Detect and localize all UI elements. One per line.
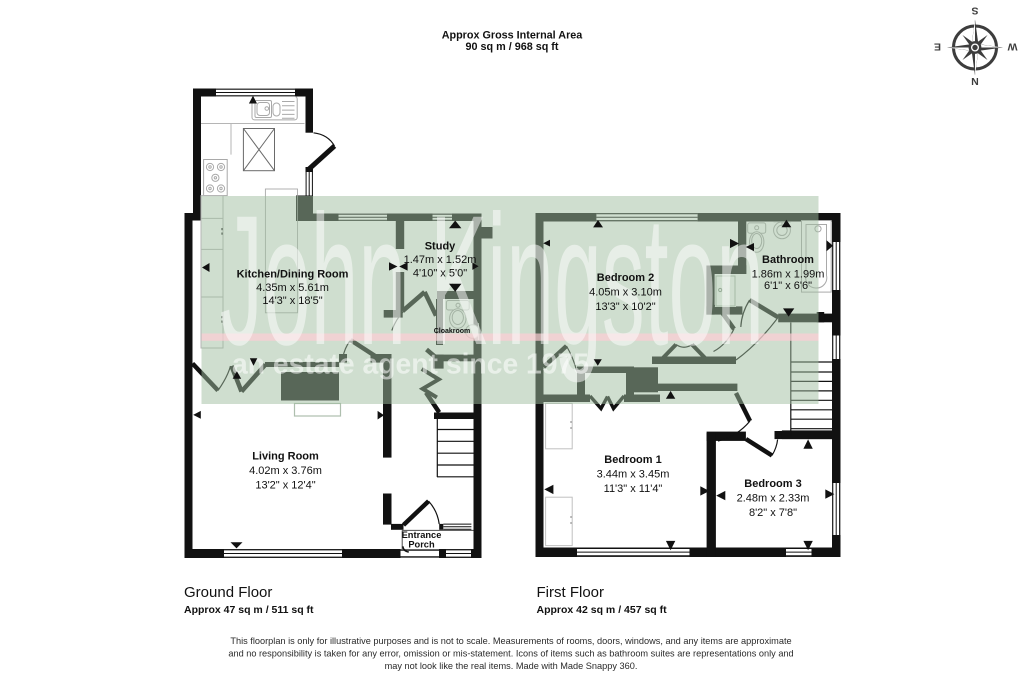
svg-text:First Floor: First Floor: [537, 584, 605, 601]
svg-text:may not look like the real ite: may not look like the real items. Made w…: [385, 661, 638, 671]
svg-text:This floorplan is only for ill: This floorplan is only for illustrative …: [230, 636, 791, 646]
svg-text:1.86m x 1.99m: 1.86m x 1.99m: [752, 269, 825, 281]
svg-text:an estate agent since 1975: an estate agent since 1975: [232, 349, 589, 381]
svg-text:Cloakroom: Cloakroom: [434, 328, 471, 335]
svg-text:3.44m x 3.45m: 3.44m x 3.45m: [597, 469, 670, 481]
svg-text:Ground Floor: Ground Floor: [184, 584, 272, 601]
svg-text:Bedroom 1: Bedroom 1: [604, 454, 661, 466]
svg-text:Porch: Porch: [408, 540, 435, 550]
svg-text:4.35m x 5.61m: 4.35m x 5.61m: [256, 282, 329, 294]
svg-text:Kitchen/Dining Room: Kitchen/Dining Room: [237, 269, 349, 281]
svg-text:Study: Study: [425, 241, 456, 253]
svg-text:Living Room: Living Room: [252, 451, 319, 463]
svg-text:90 sq m / 968 sq ft: 90 sq m / 968 sq ft: [465, 41, 558, 53]
svg-text:13'3" x 10'2": 13'3" x 10'2": [595, 301, 655, 313]
svg-text:Bedroom 3: Bedroom 3: [744, 478, 801, 490]
svg-text:4'10" x 5'0": 4'10" x 5'0": [413, 268, 467, 280]
svg-text:N: N: [971, 75, 979, 87]
svg-text:2.48m x 2.33m: 2.48m x 2.33m: [737, 493, 810, 505]
svg-text:1.47m x 1.52m: 1.47m x 1.52m: [404, 254, 477, 266]
svg-text:W: W: [1007, 41, 1017, 53]
svg-text:11'3" x 11'4": 11'3" x 11'4": [604, 483, 663, 495]
svg-text:14'3" x 18'5": 14'3" x 18'5": [262, 295, 322, 307]
svg-text:4.02m x 3.76m: 4.02m x 3.76m: [249, 465, 322, 477]
svg-text:and no responsibility is taken: and no responsibility is taken for any e…: [228, 649, 793, 659]
svg-text:6'1" x 6'6": 6'1" x 6'6": [764, 280, 812, 292]
svg-text:S: S: [971, 5, 978, 17]
svg-text:E: E: [934, 41, 941, 53]
svg-text:4.05m x 3.10m: 4.05m x 3.10m: [589, 287, 662, 299]
svg-text:13'2" x 12'4": 13'2" x 12'4": [255, 480, 315, 492]
svg-text:Approx 42 sq m / 457 sq ft: Approx 42 sq m / 457 sq ft: [537, 604, 668, 616]
svg-text:Bedroom 2: Bedroom 2: [597, 272, 654, 284]
svg-text:8'2" x 7'8": 8'2" x 7'8": [749, 507, 797, 519]
svg-text:Approx Gross Internal Area: Approx Gross Internal Area: [442, 30, 584, 42]
svg-text:Approx 47 sq m / 511 sq ft: Approx 47 sq m / 511 sq ft: [184, 604, 314, 616]
svg-text:Entrance: Entrance: [402, 530, 442, 540]
svg-text:Bathroom: Bathroom: [762, 254, 814, 266]
